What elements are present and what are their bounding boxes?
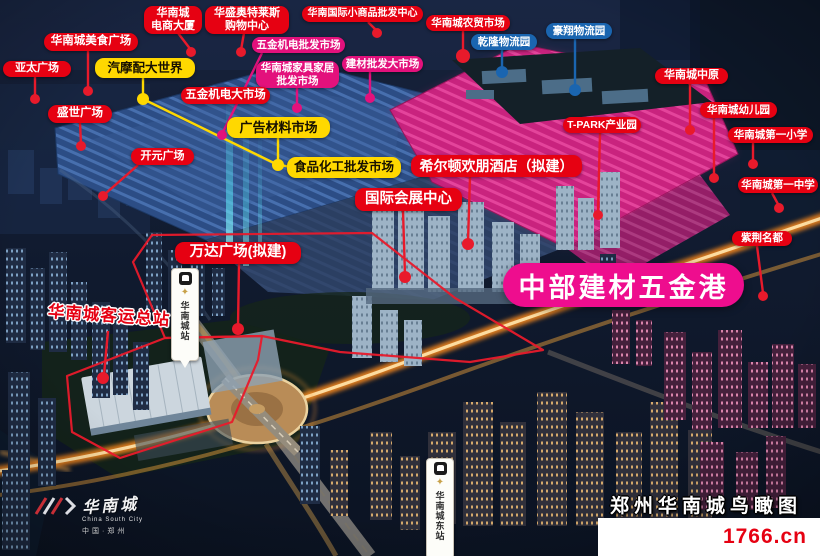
label-food-plaza: 华南城美食广场: [44, 33, 138, 51]
csc-logo-english: China South City: [82, 517, 143, 523]
label-auto-parts-world: 汽摩配大世界: [95, 58, 195, 78]
label-hardware-big-market: 五金机电大市场: [181, 87, 270, 104]
label-farm-market: 华南城农贸市场: [426, 15, 510, 31]
metro-sign-label: 华南城站: [179, 301, 192, 356]
metro-logo-icon: [434, 462, 447, 475]
metro-sign-huanancheng: ✦华南城站: [171, 268, 199, 361]
csc-logo: 华南城 China South City 中国·郑州: [32, 492, 143, 536]
label-kindergarten: 华南城幼儿园: [700, 102, 777, 118]
label-huasheng-outlets: 华盛奥特莱斯购物中心: [205, 6, 289, 34]
label-haoxiang-logistics: 豪翔物流园: [546, 23, 612, 39]
label-qianlong-logistics: 乾隆物流园: [471, 34, 537, 50]
csc-logo-location: 中国·郑州: [82, 526, 143, 536]
csc-logo-mark: [32, 492, 78, 518]
label-yatai-plaza: 亚太广场: [3, 61, 71, 77]
banner-zhongbu-jiancai: 中部建材五金港: [503, 263, 744, 307]
label-shengshi-plaza: 盛世广场: [48, 105, 112, 123]
metro-logo-icon: [179, 272, 192, 285]
label-wanda-plaza: 万达广场(拟建): [175, 242, 301, 264]
metro-sign-huanancheng-east: ✦华南城东站: [426, 458, 454, 556]
csc-logo-name: 华南城: [81, 490, 144, 518]
metro-sign-label: 华南城东站: [434, 491, 447, 554]
label-small-commodity-center: 华南国际小商品批发中心: [302, 6, 423, 22]
compass-icon: ✦: [436, 478, 444, 488]
label-kaiyuan-plaza: 开元广场: [131, 148, 194, 165]
label-convention-center: 国际会展中心: [355, 188, 462, 211]
label-hardware-wholesale: 五金机电批发市场: [252, 37, 345, 53]
site-url: 1766.cn: [723, 525, 807, 549]
label-hilton-hampton-hotel: 希尔顿欢朋酒店（拟建）: [411, 155, 582, 177]
label-csc-zhongyuan: 华南城中原: [655, 68, 728, 84]
compass-icon: ✦: [181, 288, 189, 298]
label-furniture-market: 华南城家具家居批发市场: [256, 61, 339, 88]
label-ecommerce-tower: 华南城电商大厦: [144, 6, 202, 34]
label-ad-materials-market: 广告材料市场: [227, 117, 330, 138]
label-first-middle-school: 华南城第一中学: [738, 177, 818, 193]
label-first-primary-school: 华南城第一小学: [728, 127, 813, 143]
label-t-park: T-PARK产业园: [563, 117, 641, 133]
label-zijin-mingdu: 紫荆名都: [732, 231, 792, 246]
watermark-bar: 1766.cn: [598, 518, 820, 556]
label-building-materials-market: 建材批发大市场: [342, 56, 423, 72]
aerial-map: 华南城电商大厦华盛奥特莱斯购物中心华南国际小商品批发中心华南城农贸市场豪翔物流园…: [0, 0, 820, 556]
map-title: 郑州华南城鸟瞰图: [592, 491, 820, 518]
label-bus-terminal: 华南城客运总站: [47, 301, 170, 333]
label-food-chemical-market: 食品化工批发市场: [287, 157, 401, 178]
